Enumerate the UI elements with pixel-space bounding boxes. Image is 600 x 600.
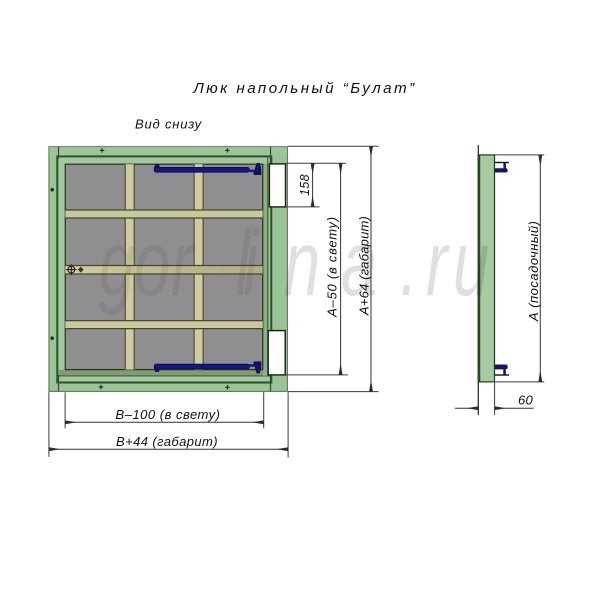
svg-text:А (посадочный): А (посадочный)	[526, 221, 541, 323]
svg-text:В+44 (габарит): В+44 (габарит)	[116, 434, 218, 449]
svg-text:gorli: gorli	[99, 212, 260, 316]
svg-text:В–100 (в свету): В–100 (в свету)	[116, 407, 221, 422]
svg-text:Вид снизу: Вид снизу	[135, 117, 203, 132]
svg-text:Люк напольный “Булат”: Люк напольный “Булат”	[192, 80, 416, 97]
svg-text:А–50 (в свету): А–50 (в свету)	[325, 216, 340, 318]
svg-text:158: 158	[298, 174, 312, 196]
svg-text:60: 60	[518, 393, 534, 408]
